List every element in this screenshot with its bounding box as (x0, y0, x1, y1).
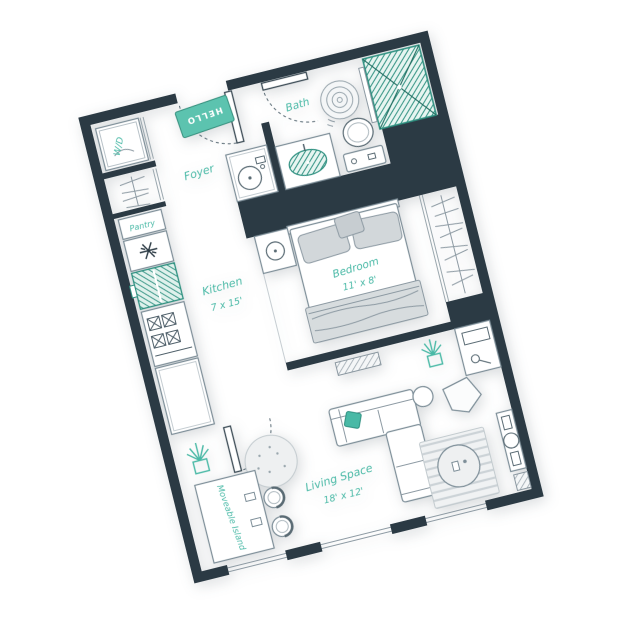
coffee-table-rug (419, 427, 499, 509)
kitchen-dims: 7 x 15' (210, 296, 244, 315)
floorplan-canvas: HELLO Foyer W/D (78, 31, 543, 584)
kitchen-label: Kitchen (201, 274, 244, 298)
desk-chair (441, 375, 484, 417)
throw-pillow (344, 411, 361, 428)
washer-dryer-closet: W/D (95, 117, 153, 171)
foyer-label: Foyer (182, 161, 217, 183)
living-label: Living Space (304, 461, 375, 494)
hello-mat: HELLO (175, 95, 235, 138)
apartment-floorplan: HELLO Foyer W/D (78, 31, 543, 584)
stove (141, 302, 197, 367)
stool-2 (270, 514, 294, 538)
kitchen-label-group: Kitchen 7 x 15' (200, 274, 248, 315)
bath-label: Bath (284, 96, 311, 115)
floorplan-page: HELLO Foyer W/D (0, 0, 634, 634)
living-label-group: Living Space 18' x 12' (303, 461, 379, 510)
desk-plant (420, 337, 446, 368)
living-dims: 18' x 12' (322, 486, 365, 507)
floor-plant (185, 440, 214, 474)
stool-1 (262, 485, 286, 509)
nightstand (254, 228, 296, 273)
